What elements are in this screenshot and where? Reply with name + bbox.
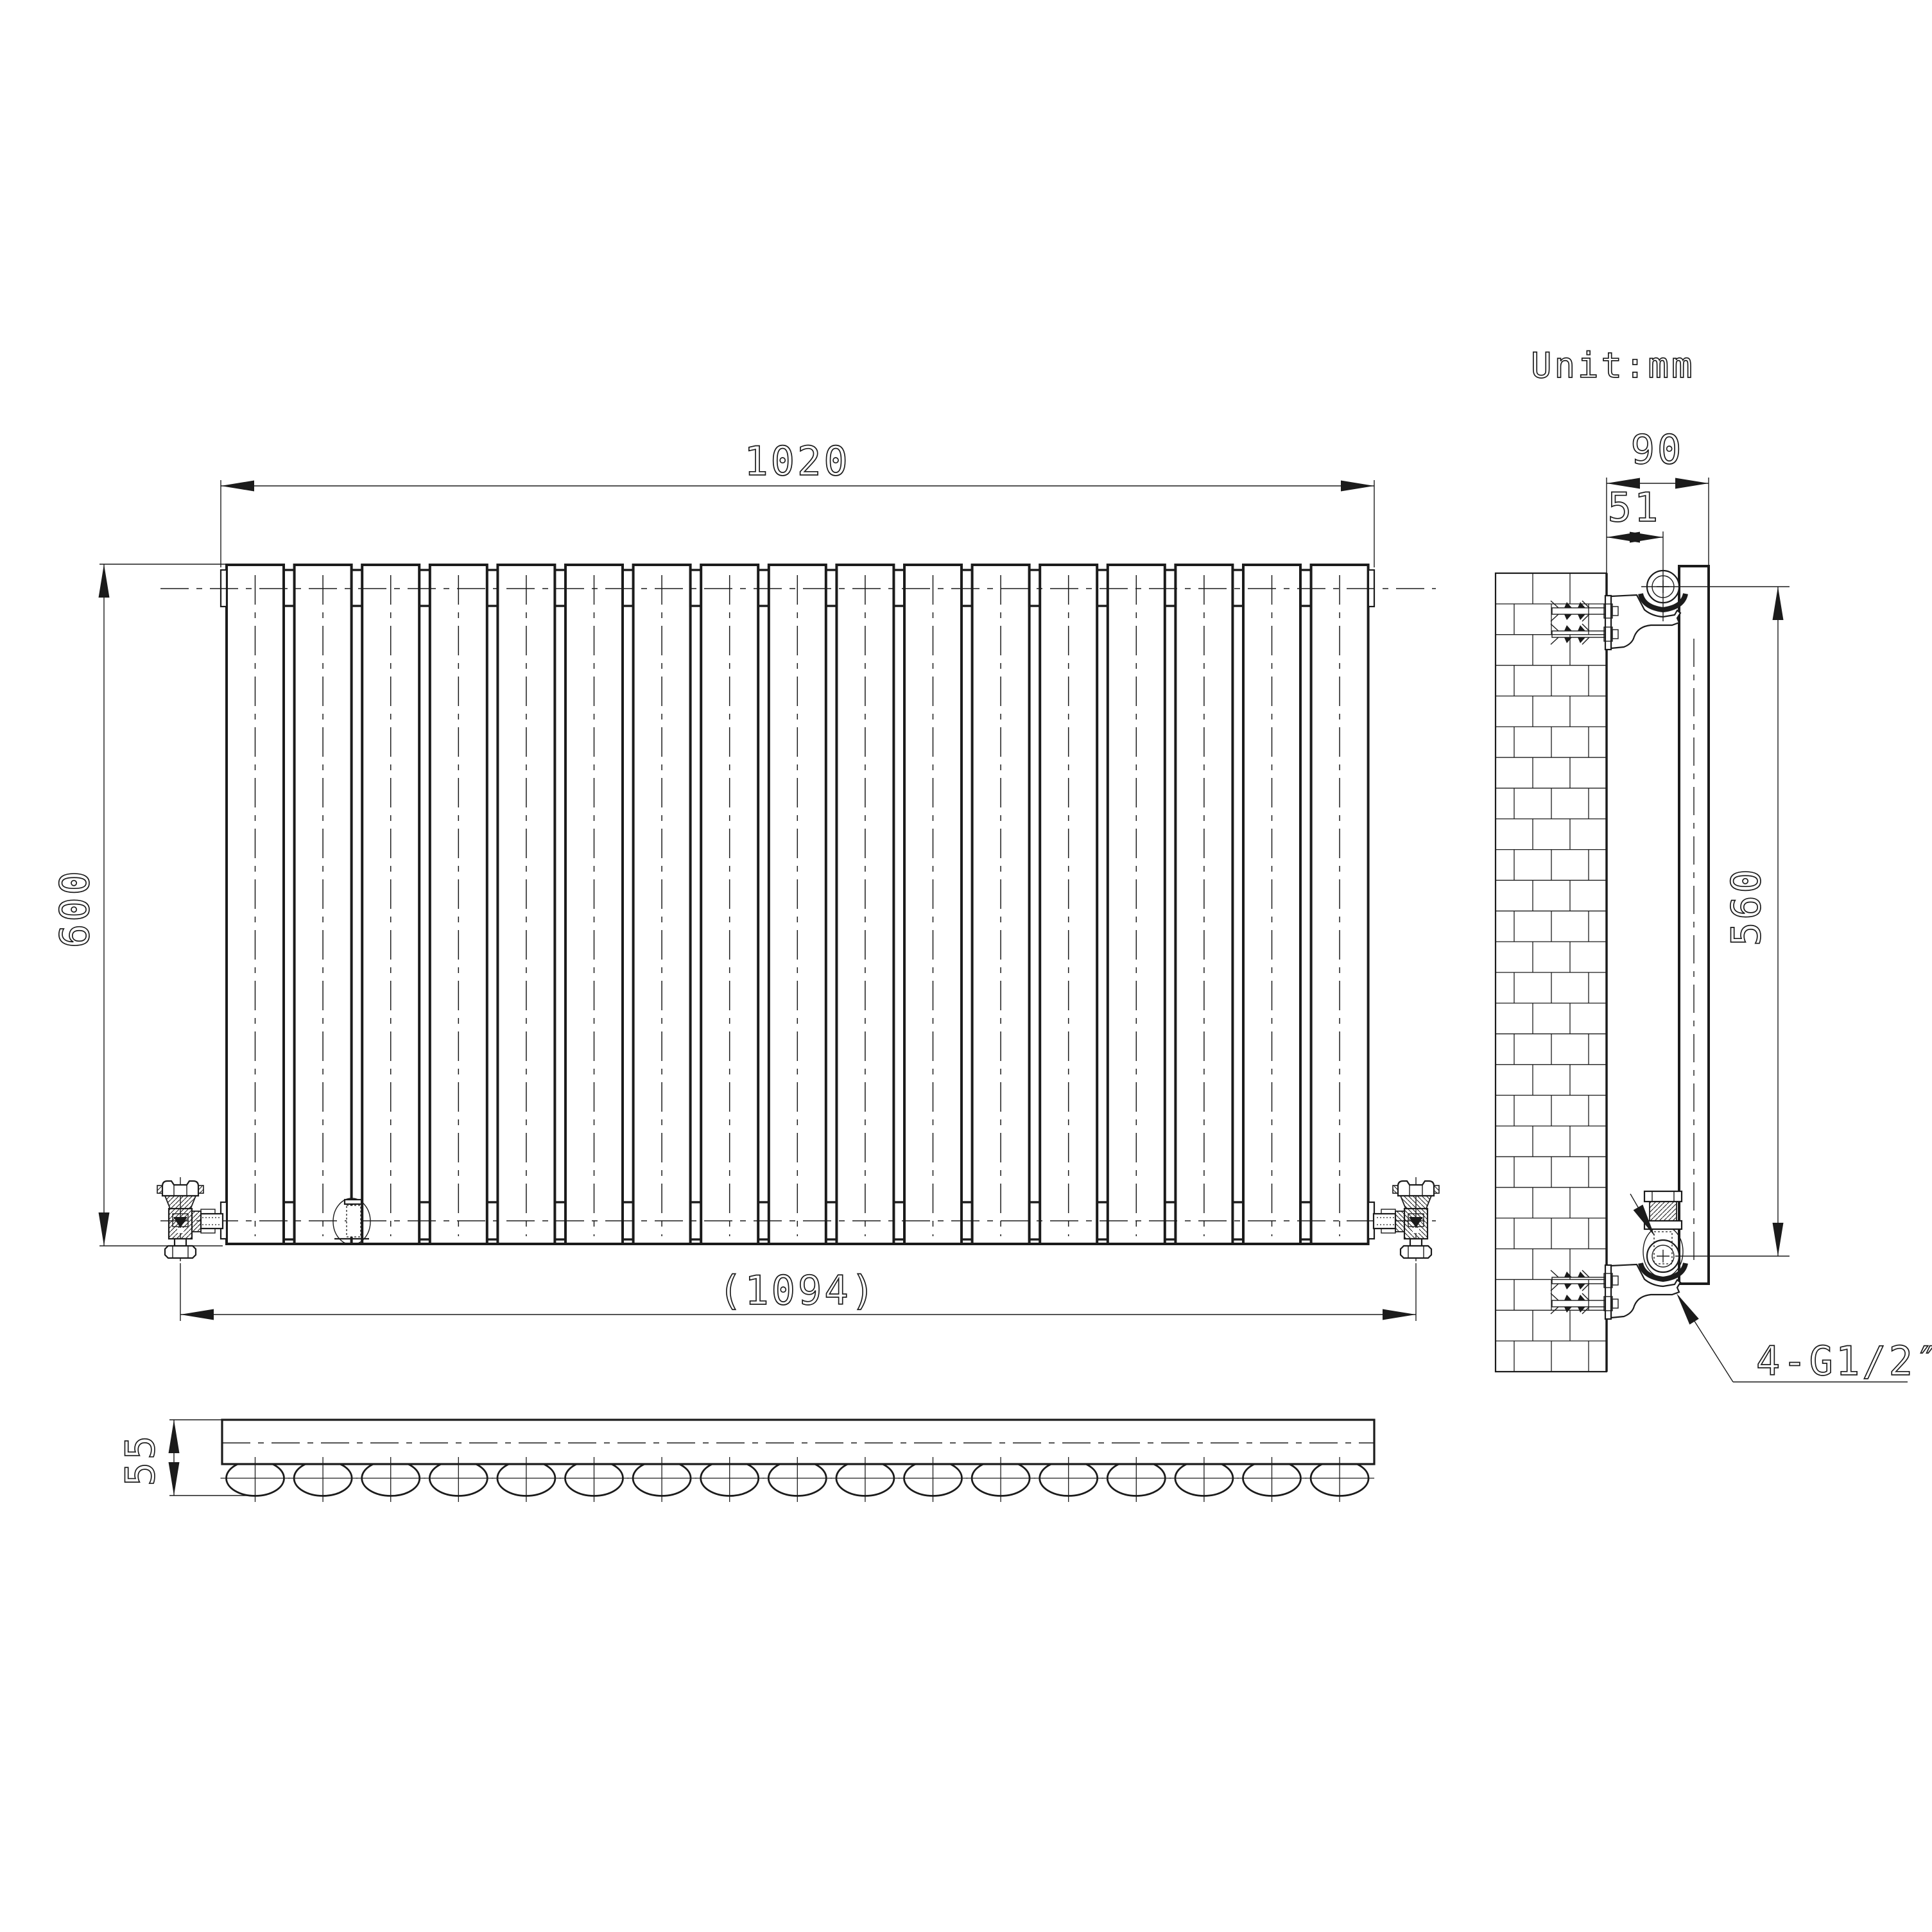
front-view <box>157 565 1439 1261</box>
drawing-canvas: 1020 600 (1094) 90 51 560 55 4-G1/2″ <box>0 0 1932 1932</box>
top-header-segment <box>352 570 363 606</box>
unit-note: Unit:mm <box>1531 345 1695 386</box>
dim-overall-height: 600 <box>51 868 98 948</box>
dimension-arrowhead <box>1672 1290 1699 1324</box>
dimension-arrowhead <box>221 481 254 492</box>
top-header-segment <box>826 570 837 606</box>
radiator-valve-right <box>1374 1177 1439 1261</box>
dimension-arrowhead <box>1675 478 1709 489</box>
top-section-view <box>221 1420 1375 1502</box>
top-header-segment <box>962 570 972 606</box>
dimension-arrowhead <box>1383 1309 1416 1320</box>
dim-pipe-offset: 51 <box>1608 484 1661 531</box>
valve-union-nut <box>192 1211 201 1232</box>
dimension-arrowhead <box>1341 481 1374 492</box>
top-header-segment <box>1097 570 1108 606</box>
top-header-segment <box>1232 570 1243 606</box>
dimension-arrowhead <box>1773 587 1784 620</box>
valve-bottom-nut <box>165 1246 196 1258</box>
top-header-segment <box>1165 570 1176 606</box>
top-header-segment <box>555 570 565 606</box>
dim-overall-width: 1020 <box>744 438 850 485</box>
top-header-segment <box>758 570 769 606</box>
brick-wall <box>1496 573 1607 1372</box>
top-wall-bracket <box>1551 571 1686 650</box>
valve-tail-pipe <box>201 1214 223 1229</box>
top-header-segment <box>1030 570 1040 606</box>
top-header-segment <box>419 570 430 606</box>
radiator-valve <box>157 1177 223 1261</box>
top-header-segment <box>487 570 498 606</box>
top-header-segment <box>1300 570 1311 606</box>
brick-pattern <box>1496 573 1607 1372</box>
radiator-technical-drawing: 1020 600 (1094) 90 51 560 55 4-G1/2″ <box>0 0 1932 1932</box>
top-view-panel-bar <box>222 1420 1374 1464</box>
dimension-arrowhead <box>99 564 110 598</box>
top-header-segment <box>284 570 295 606</box>
top-header-segment <box>623 570 634 606</box>
dimension-arrowhead <box>1773 1223 1784 1256</box>
valve-neck <box>165 1196 196 1209</box>
front-panels <box>227 565 1368 1244</box>
dimension-arrowhead <box>99 1212 110 1246</box>
dimension-arrowhead <box>169 1462 180 1496</box>
dim-valve-width: (1094) <box>718 1267 877 1314</box>
dimension-arrowhead <box>1630 532 1663 543</box>
dim-depth: 55 <box>117 1433 164 1487</box>
dim-bracket-depth: 90 <box>1631 426 1684 473</box>
dimension-arrowhead <box>180 1309 214 1320</box>
connection-size-label: 4-G1/2″ <box>1756 1338 1932 1384</box>
dimension-arrowhead <box>169 1420 180 1453</box>
side-view <box>1496 566 1908 1382</box>
dim-bracket-span: 560 <box>1723 867 1770 946</box>
top-header-segment <box>691 570 702 606</box>
top-header-segment <box>893 570 904 606</box>
